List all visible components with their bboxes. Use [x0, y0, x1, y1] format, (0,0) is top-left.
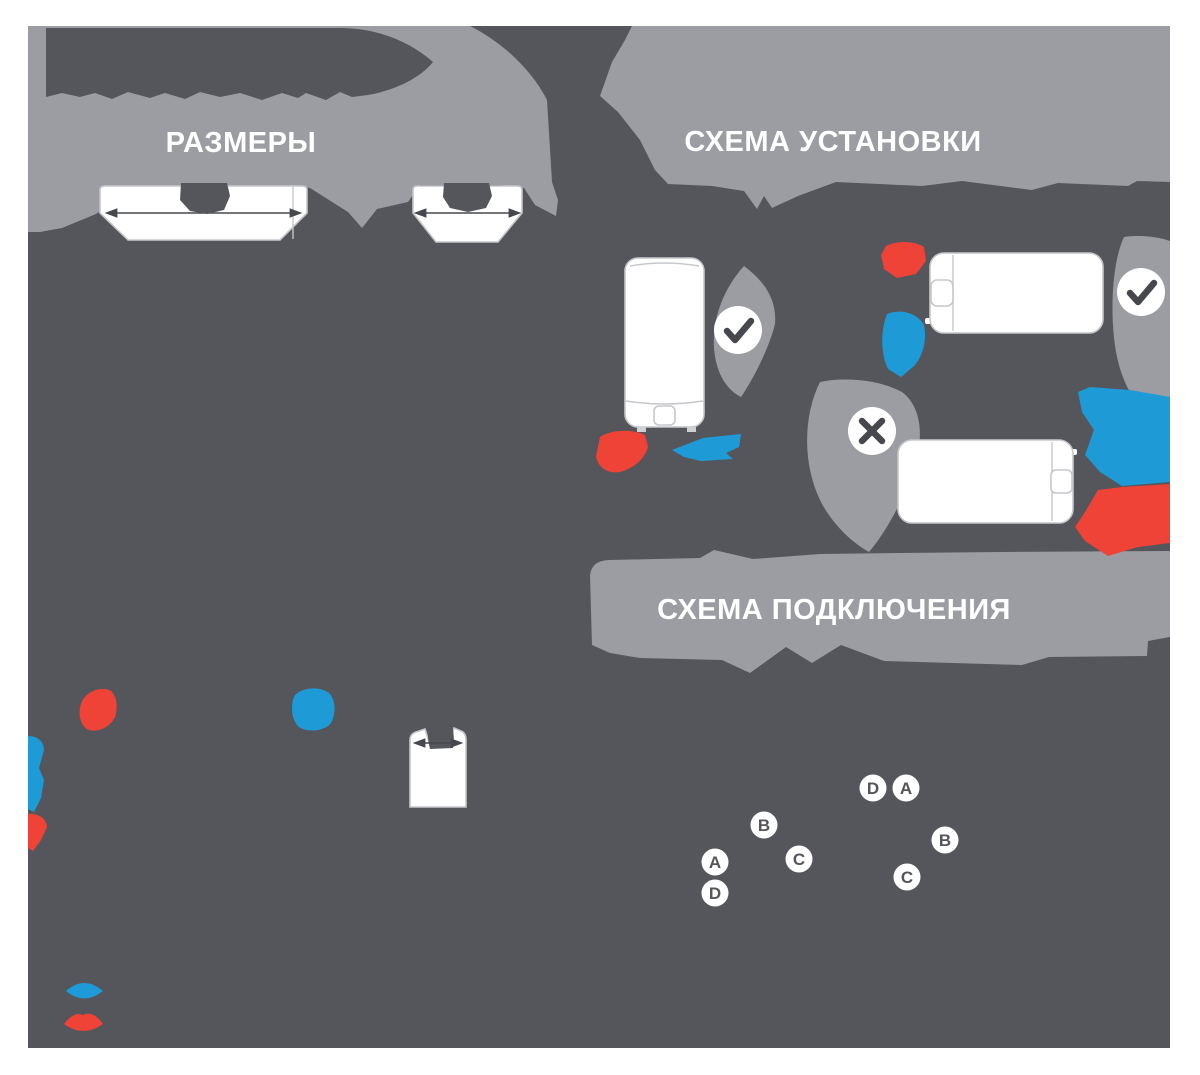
dimension-drawing-top-view-small — [413, 183, 522, 242]
port-letter: B — [939, 831, 951, 850]
port-letter: A — [900, 779, 912, 798]
port-badge: B — [751, 812, 778, 839]
dimensions-title: РАЗМЕРЫ — [166, 127, 317, 159]
port-badge: D — [702, 880, 729, 907]
heater-knob — [1051, 470, 1072, 493]
heater-foot-right — [687, 427, 696, 432]
port-badge: C — [786, 846, 813, 873]
allowed-badge-vertical — [714, 306, 762, 354]
port-letter: D — [867, 779, 879, 798]
heater-foot-left — [637, 427, 646, 432]
port-letter: B — [758, 816, 770, 835]
dimension-value-mask — [443, 183, 492, 212]
port-letter: C — [793, 850, 805, 869]
heater-knob — [654, 406, 675, 425]
port-badge: A — [893, 775, 920, 802]
port-letter: A — [709, 853, 721, 872]
dimension-drawing-front-view — [410, 725, 466, 807]
brand-logo — [46, 28, 433, 100]
cold-water-pipe-fragment — [292, 688, 335, 730]
allowed-badge-horizontal — [1117, 268, 1165, 316]
heater-knob — [931, 280, 953, 306]
port-badge: D — [860, 775, 887, 802]
installation-header-blob — [600, 26, 1170, 209]
heater-body-horizontal — [898, 440, 1073, 523]
dimension-value-mask — [428, 725, 454, 749]
water-heater-infographic: РАЗМЕРЫ СХЕМА УСТАНОВКИ СХЕМА ПОДКЛЮЧЕНИ… — [0, 0, 1200, 1075]
port-letter: D — [709, 884, 721, 903]
connection-title: СХЕМА ПОДКЛЮЧЕНИЯ — [657, 594, 1011, 626]
heater-body-horizontal — [930, 253, 1103, 333]
infographic-page: РАЗМЕРЫ СХЕМА УСТАНОВКИ СХЕМА ПОДКЛЮЧЕНИ… — [0, 0, 1200, 1075]
badge-circle — [1117, 268, 1165, 316]
forbidden-badge — [848, 407, 896, 455]
installation-title: СХЕМА УСТАНОВКИ — [684, 126, 981, 158]
badge-circle — [714, 306, 762, 354]
heater-body-vertical — [625, 258, 704, 427]
port-badge: C — [894, 864, 921, 891]
port-badge: A — [702, 849, 729, 876]
port-badge: B — [932, 827, 959, 854]
dimension-drawing-top-view-large — [100, 183, 307, 240]
port-letter: C — [901, 868, 913, 887]
